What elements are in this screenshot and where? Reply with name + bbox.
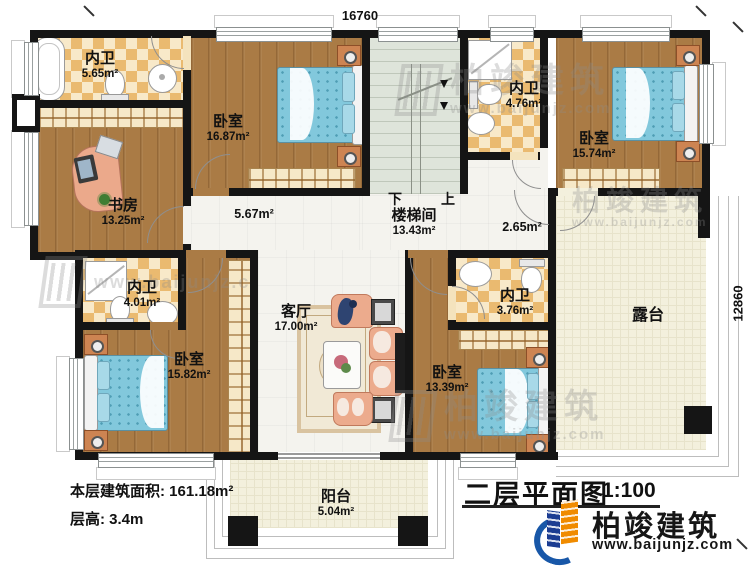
wardrobe-bedroom1	[248, 168, 356, 190]
window	[24, 42, 39, 96]
side-table	[371, 397, 395, 423]
cushion	[337, 398, 349, 416]
stair-arrow	[440, 102, 448, 110]
wall	[83, 322, 158, 330]
window	[98, 453, 214, 468]
pillow	[342, 72, 355, 102]
brand-logo-blue-block	[547, 510, 560, 548]
room-label-hallway1: 5.67m²	[209, 207, 299, 222]
pillow	[342, 104, 355, 134]
window	[460, 453, 516, 468]
pillow	[527, 401, 539, 428]
dim-tick	[83, 5, 94, 16]
wall	[362, 30, 370, 194]
wardrobe-study	[38, 106, 185, 128]
wall	[698, 196, 710, 238]
dim-tick	[732, 21, 743, 32]
window	[699, 64, 714, 144]
bed-sheet	[290, 68, 314, 140]
wall	[75, 250, 258, 258]
pillow	[97, 393, 110, 422]
dimension-top: 16760	[330, 8, 390, 23]
door-gap	[510, 152, 538, 160]
pillar	[228, 516, 258, 546]
cushion	[352, 398, 364, 416]
window	[24, 132, 39, 226]
window	[69, 358, 84, 450]
room-label-bedroom2: 卧室 15.74m²	[549, 130, 639, 162]
person-head	[349, 300, 357, 308]
bed-headboard	[84, 355, 98, 431]
room-label-bedroom1: 卧室 16.87m²	[183, 113, 273, 145]
room-label-bath4: 内卫 3.76m²	[470, 287, 560, 319]
window	[378, 27, 458, 42]
wall	[448, 322, 556, 330]
floor-area-value: 161.18m²	[169, 483, 233, 500]
chimney-flue	[17, 100, 35, 126]
brand-logo	[534, 501, 590, 559]
door-gap	[183, 36, 191, 70]
side-table	[371, 299, 395, 325]
window-sill	[712, 62, 726, 146]
pillar	[684, 406, 712, 434]
door-gap	[540, 148, 548, 188]
door-gap	[186, 250, 226, 258]
window-sill	[56, 356, 70, 452]
brand-website: www.baijunjz.com	[592, 537, 733, 553]
cushion	[373, 366, 391, 388]
sink-drain	[159, 74, 165, 80]
nightstand	[676, 141, 700, 162]
dimension-right: 12860	[731, 274, 746, 334]
floor-area-info: 本层建筑面积: 161.18m²	[70, 480, 233, 501]
dim-tick	[695, 5, 706, 16]
bed-sheet	[626, 68, 650, 138]
nightstand	[676, 45, 700, 66]
pillow	[672, 71, 685, 100]
sink	[459, 261, 492, 287]
door-gap	[193, 188, 229, 196]
window-sill	[11, 40, 25, 98]
room-label-balcony: 阳台 5.04m²	[291, 488, 381, 520]
stair-arrow	[440, 80, 448, 88]
room-label-bedroom4: 卧室 13.39m²	[402, 364, 492, 396]
window-sill	[11, 130, 25, 228]
cushion	[373, 331, 391, 353]
bed-sheet	[505, 369, 529, 433]
room-label-bedroom3: 卧室 15.82m²	[144, 351, 234, 383]
floor-plan: 内卫 5.65m² 书房 13.25m² 卧室 16.87m² 5.67m² 楼…	[0, 0, 750, 569]
room-label-living: 客厅 17.00m²	[251, 303, 341, 335]
dim-tick	[736, 538, 747, 549]
floor-area-label: 本层建筑面积:	[70, 483, 165, 500]
pillow	[97, 361, 110, 390]
pillow	[527, 373, 539, 400]
sliding-door-rail	[278, 457, 380, 459]
flowers-leaf	[341, 363, 351, 373]
nightstand	[84, 430, 108, 451]
wall	[30, 100, 191, 108]
nightstand	[337, 146, 361, 167]
stair-up-label: 上	[441, 189, 455, 209]
floor-height-label: 层高:	[70, 511, 105, 528]
door-gap	[558, 188, 598, 196]
door-gap	[408, 250, 448, 258]
wall	[460, 30, 468, 194]
nightstand	[84, 334, 108, 355]
room-label-bath1: 内卫 5.65m²	[55, 50, 145, 82]
nightstand	[337, 45, 361, 66]
door-gap	[150, 322, 178, 330]
sink	[467, 112, 495, 135]
nightstand	[526, 347, 550, 368]
toilet-tank	[519, 259, 545, 267]
room-label-bath3: 内卫 4.01m²	[97, 279, 187, 311]
stair-stringer	[411, 64, 421, 194]
floor-height-info: 层高: 3.4m	[70, 508, 143, 529]
bed-headboard	[684, 65, 698, 143]
window	[490, 27, 534, 42]
plan-scale: 1:100	[602, 479, 656, 503]
wall	[405, 250, 413, 460]
sliding-door-rail	[278, 453, 380, 455]
floor-height-value: 3.4m	[109, 511, 143, 528]
room-label-hallway2: 2.65m²	[477, 220, 567, 235]
window-sill	[96, 467, 216, 480]
brand-logo-orange-block	[561, 500, 578, 544]
room-label-study: 书房 13.25m²	[78, 197, 168, 229]
room-label-bath2: 内卫 4.76m²	[479, 80, 569, 112]
pillar	[398, 516, 428, 546]
room-label-stairwell: 楼梯间 13.43m²	[369, 207, 459, 239]
door-gap	[183, 206, 191, 244]
room-label-terrace: 露台	[603, 306, 693, 325]
window	[216, 27, 332, 42]
window	[582, 27, 670, 42]
wardrobe-bedroom2	[562, 168, 660, 190]
wall	[250, 258, 258, 452]
stair-down-label: 下	[388, 189, 402, 209]
pillow	[672, 103, 685, 132]
